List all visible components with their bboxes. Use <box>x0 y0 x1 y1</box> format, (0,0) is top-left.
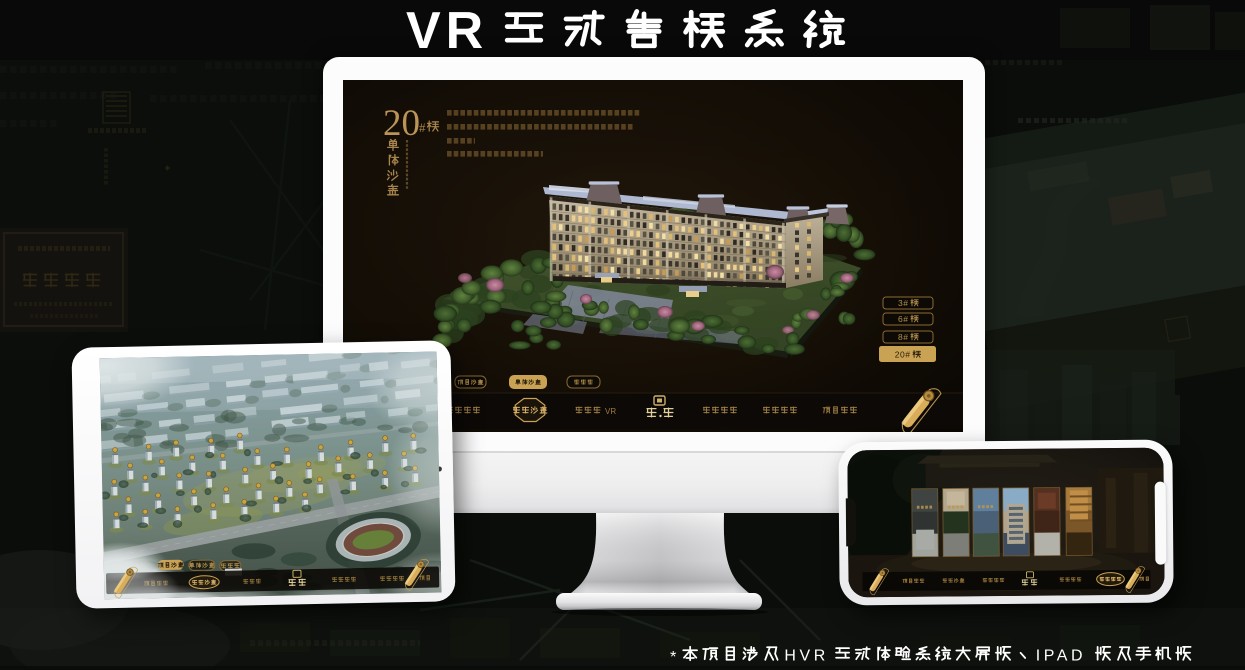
svg-text:8#: 8# <box>898 332 908 342</box>
svg-text:VR: VR <box>605 407 616 416</box>
svg-text:VR: VR <box>406 2 488 56</box>
svg-text:HVR: HVR <box>784 648 829 665</box>
svg-text:#: # <box>419 120 426 135</box>
svg-text:20#: 20# <box>895 350 911 360</box>
svg-text:6#: 6# <box>898 314 908 324</box>
svg-text:*: * <box>670 648 677 666</box>
svg-text:3#: 3# <box>898 298 908 308</box>
svg-text:IPAD: IPAD <box>1036 648 1086 665</box>
svg-text:20: 20 <box>383 103 420 144</box>
